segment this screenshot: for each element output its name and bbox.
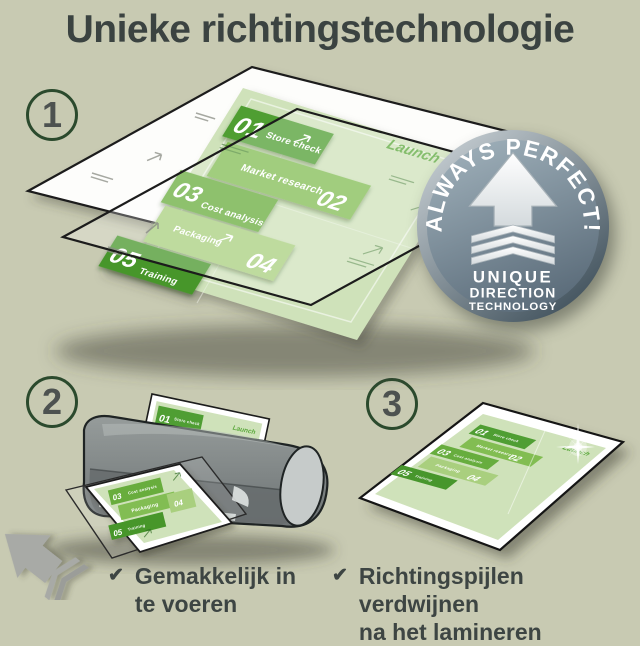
bullet-easy-feed-text: Gemakkelijk in te voeren [135, 562, 296, 618]
check-icon: ✔ [332, 562, 348, 646]
page-title: Unieke richtingstechnologie [0, 8, 640, 52]
ground-shadow [55, 325, 535, 377]
bullet-arrows-disappear-text: Richtingspijlen verdwijnen na het lamine… [359, 562, 640, 646]
check-icon: ✔ [108, 562, 124, 618]
laminated-sheet: Launch 01 Store check Market research 02… [360, 403, 623, 550]
step3-result-graphic: Launch 01 Store check Market research 02… [350, 372, 640, 587]
ground-shadow [45, 535, 335, 565]
bullet-easy-feed: ✔ Gemakkelijk in te voeren [108, 562, 296, 618]
bullet-arrows-disappear: ✔ Richtingspijlen verdwijnen na het lami… [332, 562, 640, 646]
always-perfect-badge: ALWAYS PERFECT! UNIQUE DIRECTION TECHNOL… [414, 127, 612, 325]
infographic-canvas: { "title": "Unieke richtingstechnologie"… [0, 0, 640, 640]
badge-line3: TECHNOLOGY [469, 301, 557, 313]
badge-line2: DIRECTION [470, 284, 557, 300]
